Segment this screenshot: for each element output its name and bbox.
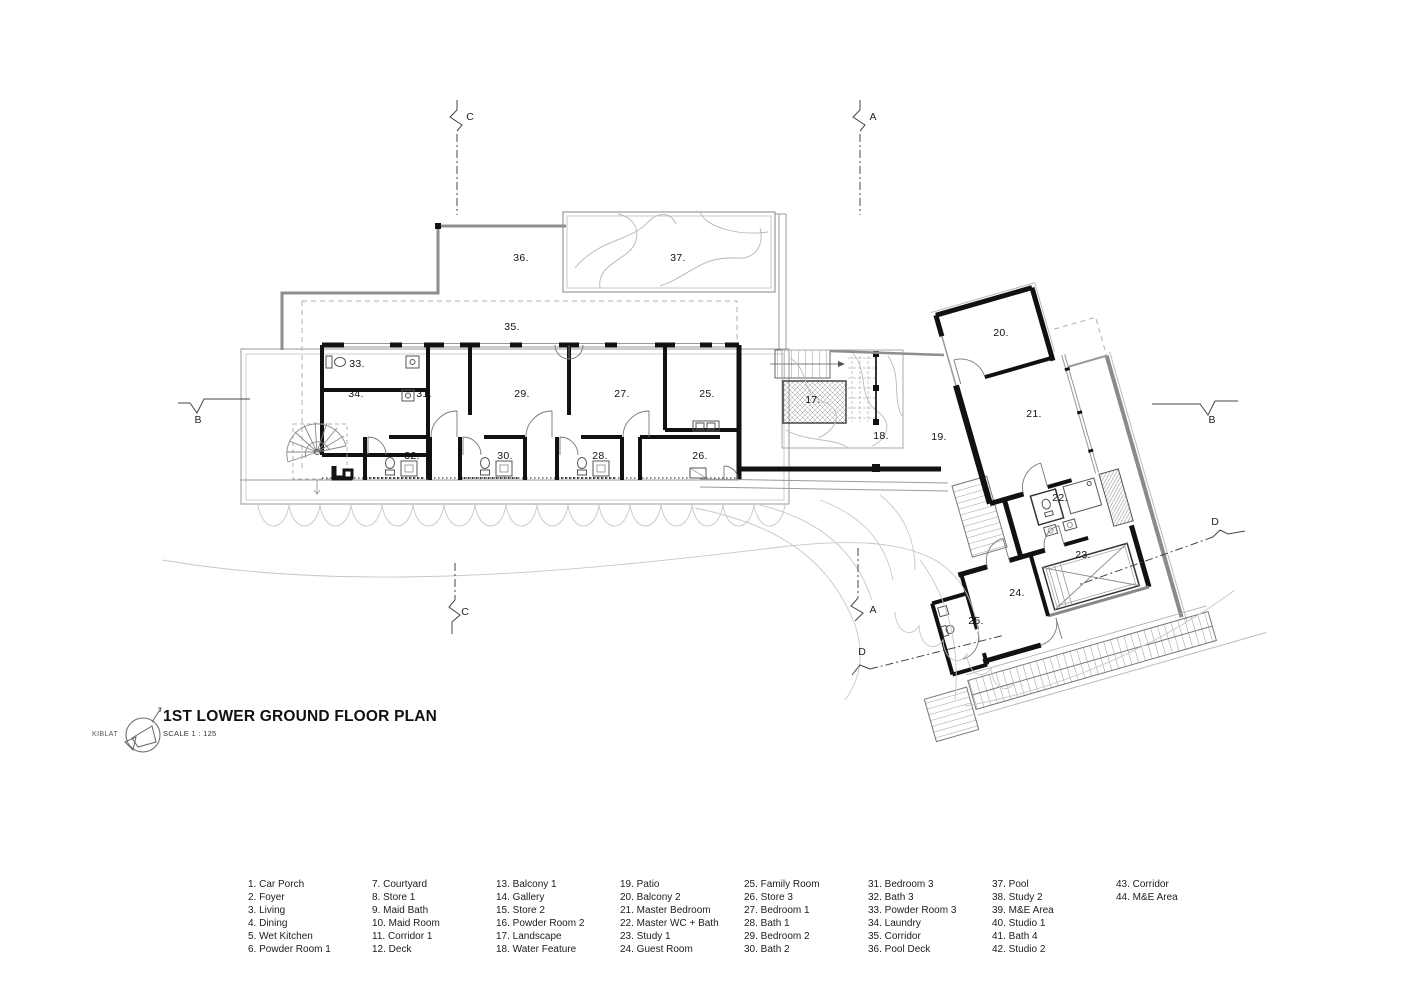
legend-column: 7. Courtyard8. Store 19. Maid Bath10. Ma…	[372, 878, 496, 956]
legend-item: 9. Maid Bath	[372, 904, 496, 917]
room-label-store3: 26.	[692, 450, 708, 462]
pool-water-curves	[575, 212, 768, 288]
legend-item: 4. Dining	[248, 917, 372, 930]
section-marker-a-top: A	[869, 111, 876, 123]
legend-item: 6. Powder Room 1	[248, 943, 372, 956]
legend-item: 10. Maid Room	[372, 917, 496, 930]
room-label-bath1: 28.	[592, 450, 608, 462]
legend-item: 42. Studio 2	[992, 943, 1116, 956]
compass-icon	[125, 708, 161, 752]
legend-item: 44. M&E Area	[1116, 891, 1240, 904]
room-label-patio: 19.	[931, 431, 947, 443]
floor-plan-drawing	[0, 0, 1414, 1000]
legend-item: 1. Car Porch	[248, 878, 372, 891]
legend-item: 34. Laundry	[868, 917, 992, 930]
store3-room	[640, 437, 738, 480]
legend-column: 43. Corridor44. M&E Area	[1116, 878, 1240, 956]
room-label-corridor: 35.	[504, 321, 520, 333]
legend-item: 39. M&E Area	[992, 904, 1116, 917]
bath-module-30	[460, 437, 525, 480]
legend-item: 23. Study 1	[620, 930, 744, 943]
right-wing	[822, 248, 1270, 742]
legend-item: 2. Foyer	[248, 891, 372, 904]
room-label-master-bedroom: 21.	[1026, 408, 1042, 420]
room-label-study1: 23.	[1075, 549, 1091, 561]
section-marker-d-bottom: D	[858, 646, 866, 658]
room-label-bath2: 30.	[497, 450, 513, 462]
legend-item: 37. Pool	[992, 878, 1116, 891]
landscape-steps-dashed	[848, 356, 876, 422]
legend-item: 11. Corridor 1	[372, 930, 496, 943]
legend-item: 15. Store 2	[496, 904, 620, 917]
legend-item: 29. Bedroom 2	[744, 930, 868, 943]
legend-item: 35. Corridor	[868, 930, 992, 943]
legend-column: 25. Family Room26. Store 327. Bedroom 12…	[744, 878, 868, 956]
legend-item: 22. Master WC + Bath	[620, 917, 744, 930]
legend-item: 36. Pool Deck	[868, 943, 992, 956]
legend-item: 25. Family Room	[744, 878, 868, 891]
room-label-master-wc-bath: 22.	[1052, 492, 1068, 504]
legend-item: 31. Bedroom 3	[868, 878, 992, 891]
legend-column: 19. Patio20. Balcony 221. Master Bedroom…	[620, 878, 744, 956]
bedroom-top-wall	[322, 344, 739, 348]
legend-item: 13. Balcony 1	[496, 878, 620, 891]
legend-column: 31. Bedroom 332. Bath 333. Powder Room 3…	[868, 878, 992, 956]
room-label-bath3: 32.	[404, 450, 420, 462]
legend-item: 20. Balcony 2	[620, 891, 744, 904]
title-block: 1ST LOWER GROUND FLOOR PLAN SCALE 1 : 12…	[163, 708, 437, 738]
wall-stubs	[334, 466, 352, 478]
legend-item: 30. Bath 2	[744, 943, 868, 956]
powder-room3-fixtures	[326, 356, 419, 401]
legend-item: 14. Gallery	[496, 891, 620, 904]
room-label-balcony2: 20.	[993, 327, 1009, 339]
left-wing-walls	[240, 345, 739, 480]
legend-item: 16. Powder Room 2	[496, 917, 620, 930]
legend-column: 13. Balcony 114. Gallery15. Store 216. P…	[496, 878, 620, 956]
legend-item: 27. Bedroom 1	[744, 904, 868, 917]
bedroom-door-arcs	[431, 411, 649, 437]
legend-item: 41. Bath 4	[992, 930, 1116, 943]
legend-item: 33. Powder Room 3	[868, 904, 992, 917]
room-label-laundry: 34.	[348, 388, 364, 400]
bath-module-28	[557, 437, 622, 480]
legend-item: 18. Water Feature	[496, 943, 620, 956]
middle-stair	[770, 350, 845, 378]
legend-item: 19. Patio	[620, 878, 744, 891]
legend-item: 32. Bath 3	[868, 891, 992, 904]
section-marker-c-top: C	[466, 111, 474, 123]
legend-item: 21. Master Bedroom	[620, 904, 744, 917]
legend-item: 24. Guest Room	[620, 943, 744, 956]
legend-item: 3. Living	[248, 904, 372, 917]
patio-side-stair	[952, 476, 1007, 557]
room-label-pool-deck: 36.	[513, 252, 529, 264]
legend-item: 8. Store 1	[372, 891, 496, 904]
drawing-sheet: 17. 18. 19. 20. 21. 22. 23. 24. 25. 25. …	[0, 0, 1414, 1000]
section-marker-c-bottom: C	[461, 606, 469, 618]
room-label-landscape: 17.	[805, 394, 821, 406]
pool	[563, 212, 775, 292]
legend-item: 40. Studio 1	[992, 917, 1116, 930]
room-legend: 1. Car Porch2. Foyer3. Living4. Dining5.…	[248, 878, 1240, 956]
room-label-family-room: 25.	[699, 388, 715, 400]
legend-column: 1. Car Porch2. Foyer3. Living4. Dining5.…	[248, 878, 372, 956]
spiral-stair	[287, 422, 347, 494]
room-label-water-feature: 18.	[873, 430, 889, 442]
legend-item: 17. Landscape	[496, 930, 620, 943]
scale-label: SCALE 1 : 125	[163, 729, 437, 738]
room-label-bedroom3: 31.	[416, 388, 432, 400]
legend-item: 7. Courtyard	[372, 878, 496, 891]
logo-text: KIBLAT	[92, 731, 118, 738]
room-label-guest-bath: 25.	[968, 615, 984, 627]
section-marker-b-right: B	[1208, 414, 1215, 426]
room-label-pool: 37.	[670, 252, 686, 264]
legend-item: 12. Deck	[372, 943, 496, 956]
legend-item: 26. Store 3	[744, 891, 868, 904]
section-marker-b-left: B	[194, 414, 201, 426]
section-marker-a-bottom: A	[869, 604, 876, 616]
room-label-bedroom1: 27.	[614, 388, 630, 400]
legend-item: 5. Wet Kitchen	[248, 930, 372, 943]
patio-top-edge	[830, 351, 944, 355]
page-title: 1ST LOWER GROUND FLOOR PLAN	[163, 708, 437, 726]
legend-item: 38. Study 2	[992, 891, 1116, 904]
pool-deck-outline	[282, 214, 786, 350]
section-marker-d-right: D	[1211, 516, 1219, 528]
legend-item: 28. Bath 1	[744, 917, 868, 930]
bath-module-32	[365, 437, 430, 480]
legend-item: 43. Corridor	[1116, 878, 1240, 891]
room-label-bedroom2: 29.	[514, 388, 530, 400]
legend-column: 37. Pool38. Study 239. M&E Area40. Studi…	[992, 878, 1116, 956]
room-label-guest-room: 24.	[1009, 587, 1025, 599]
room-label-powder-room3: 33.	[349, 358, 365, 370]
